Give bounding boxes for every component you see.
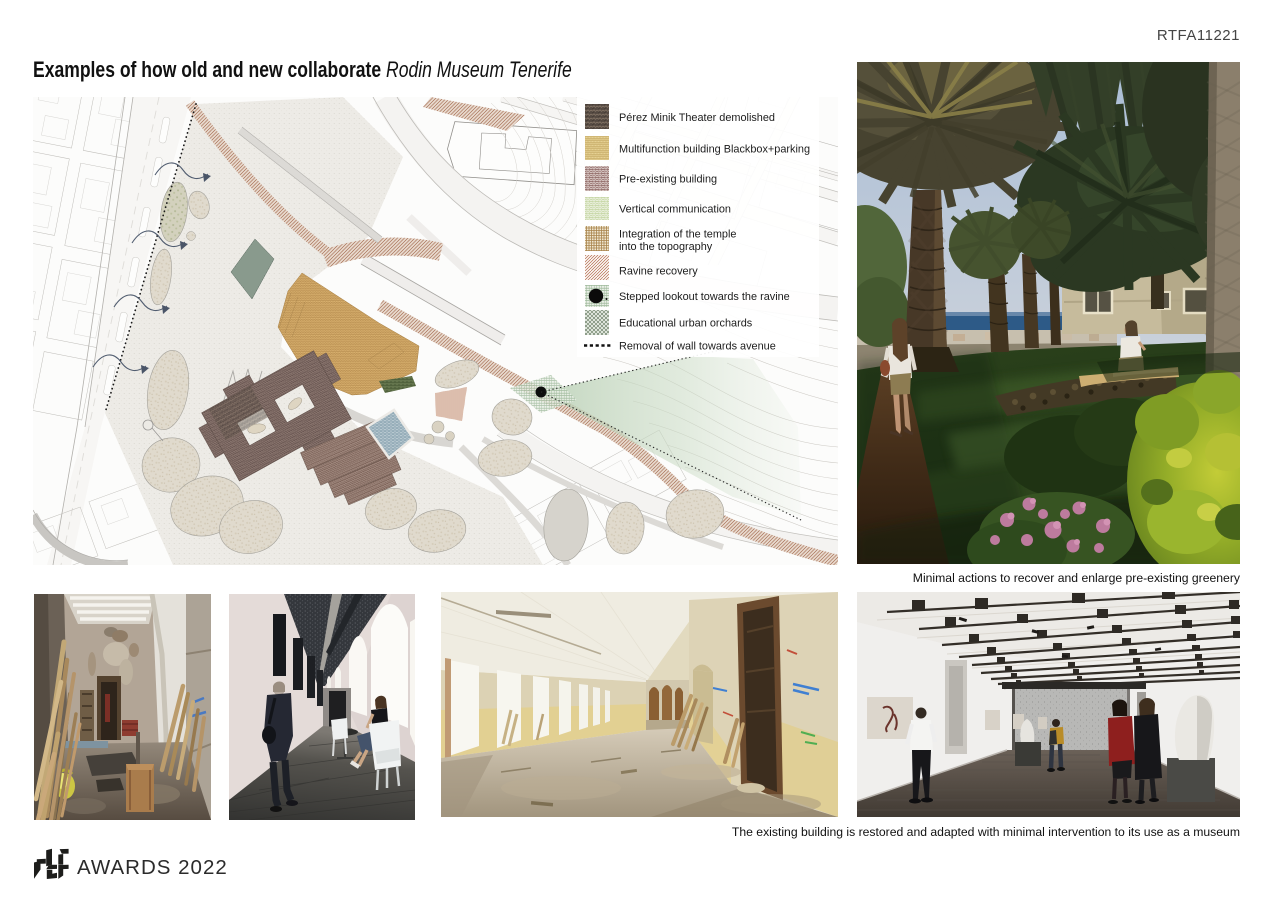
svg-text:Educational urban orchards: Educational urban orchards bbox=[619, 318, 753, 330]
svg-text:Integration of the temple: Integration of the temple bbox=[619, 229, 736, 241]
svg-text:Multifunction building Blackbo: Multifunction building Blackbox+parking bbox=[619, 144, 810, 156]
svg-text:Stepped lookout towards the ra: Stepped lookout towards the ravine bbox=[619, 291, 790, 303]
svg-text:Vertical communication: Vertical communication bbox=[619, 204, 731, 216]
svg-text:into the topography: into the topography bbox=[619, 241, 713, 253]
svg-text:Removal of wall towards avenue: Removal of wall towards avenue bbox=[619, 341, 776, 353]
svg-text:Pérez Minik Theater demolished: Pérez Minik Theater demolished bbox=[619, 112, 775, 124]
svg-text:Ravine recovery: Ravine recovery bbox=[619, 266, 698, 278]
svg-text:Pre-existing building: Pre-existing building bbox=[619, 174, 717, 186]
